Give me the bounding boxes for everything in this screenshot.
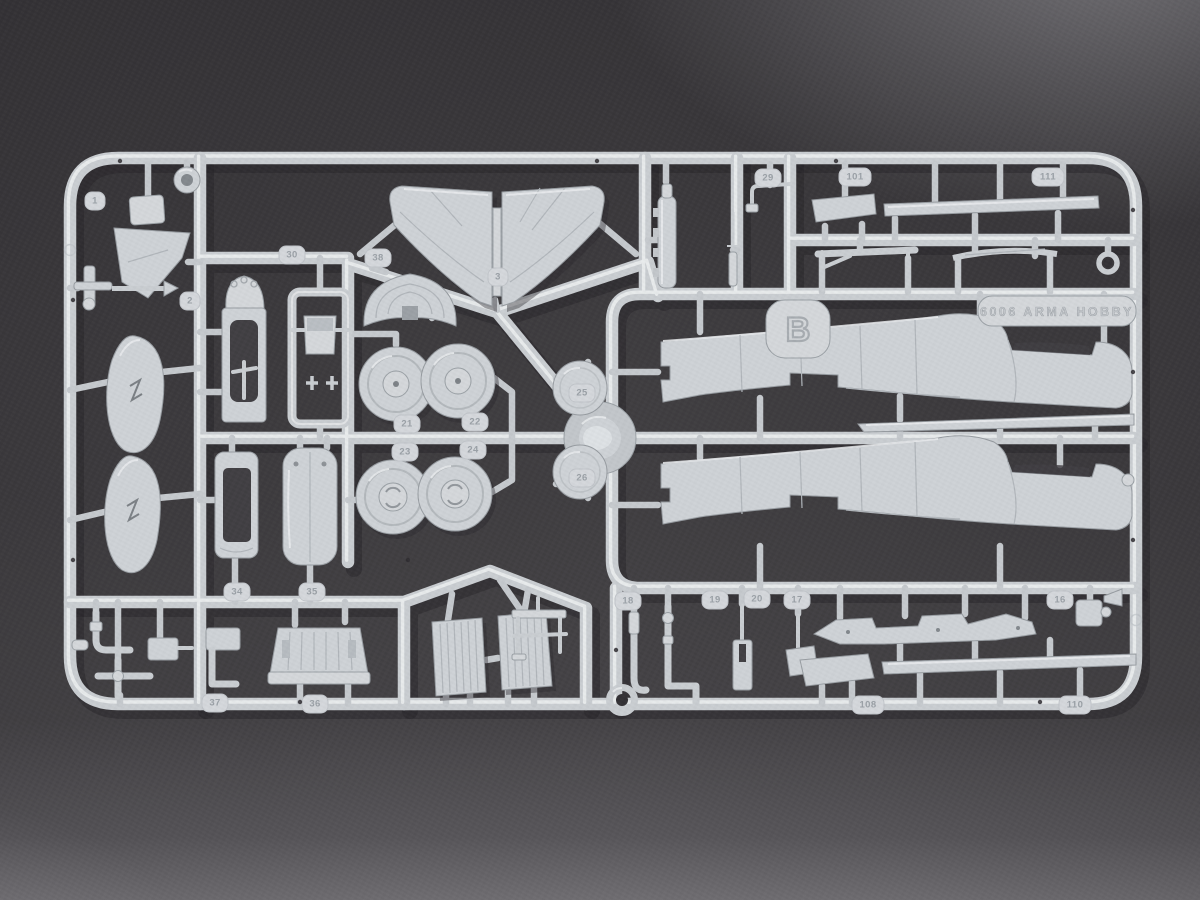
sprue-photo: B 6006 ARMA HOBBY 1 2 29 101 111 30 38 3… bbox=[0, 0, 1200, 900]
part-undercarriage-beam bbox=[814, 614, 1036, 644]
sprue-letter-tab: B bbox=[766, 300, 830, 358]
mold-text-tab: 6006 ARMA HOBBY bbox=[978, 296, 1136, 326]
part-side-panel-upper bbox=[107, 336, 164, 453]
part-wheel bbox=[421, 344, 499, 423]
part-tag: 34 bbox=[224, 583, 250, 601]
part-side-panel-lower bbox=[105, 456, 161, 573]
svg-text:3: 3 bbox=[495, 272, 501, 283]
part-linkage-left bbox=[818, 250, 915, 290]
part-tag: 101 bbox=[839, 168, 871, 186]
part-tag: 38 bbox=[365, 249, 391, 267]
part-tag: 30 bbox=[279, 246, 305, 264]
part-fuselage-half-upper bbox=[661, 314, 1132, 408]
part-tag: 3 bbox=[488, 268, 508, 286]
svg-text:111: 111 bbox=[1040, 172, 1056, 183]
part-tag: 22 bbox=[462, 413, 488, 431]
part-t-pipe bbox=[98, 660, 150, 696]
part-canopy-plug bbox=[283, 448, 337, 565]
part-ring-small bbox=[1099, 254, 1117, 272]
part-tag: 16 bbox=[1047, 591, 1073, 609]
svg-text:108: 108 bbox=[859, 700, 876, 711]
svg-text:30: 30 bbox=[286, 250, 297, 261]
part-hook-strip bbox=[629, 612, 646, 690]
svg-text:34: 34 bbox=[231, 587, 243, 598]
part-cockpit-frame bbox=[222, 276, 266, 422]
part-tag: 23 bbox=[392, 443, 418, 461]
svg-text:26: 26 bbox=[576, 473, 587, 484]
part-long-strip-top bbox=[884, 196, 1099, 216]
part-seat-assembly bbox=[292, 292, 348, 424]
svg-text:36: 36 bbox=[309, 699, 320, 710]
part-elbow-pipe bbox=[90, 612, 130, 650]
svg-text:1: 1 bbox=[92, 196, 98, 207]
part-long-strip-bottom bbox=[882, 654, 1136, 674]
part-z-lever bbox=[663, 606, 697, 704]
part-tag: 29 bbox=[755, 169, 781, 187]
part-wheel bbox=[418, 457, 496, 536]
part-block-bracket bbox=[148, 638, 192, 660]
svg-text:18: 18 bbox=[622, 596, 633, 607]
mold-text: 6006 ARMA HOBBY bbox=[980, 305, 1134, 319]
svg-text:38: 38 bbox=[372, 253, 383, 264]
part-flap-plate-lower bbox=[800, 654, 874, 686]
part-tag: 2 bbox=[180, 292, 200, 310]
part-cup bbox=[174, 167, 200, 193]
part-fuselage-tub bbox=[215, 452, 258, 558]
svg-text:22: 22 bbox=[469, 417, 480, 428]
part-tag: 17 bbox=[784, 591, 810, 609]
part-tag: 35 bbox=[299, 583, 325, 601]
part-tag: 110 bbox=[1059, 696, 1091, 714]
svg-text:2: 2 bbox=[187, 296, 193, 307]
part-nose-knob bbox=[1122, 474, 1134, 486]
part-tag: 25 bbox=[569, 384, 595, 402]
svg-text:16: 16 bbox=[1054, 595, 1065, 606]
svg-text:21: 21 bbox=[401, 419, 413, 430]
part-tag: 1 bbox=[85, 192, 105, 210]
svg-text:110: 110 bbox=[1067, 700, 1084, 711]
part-radiator bbox=[498, 612, 556, 695]
svg-text:23: 23 bbox=[399, 447, 410, 458]
part-tag: 24 bbox=[460, 441, 486, 459]
svg-text:17: 17 bbox=[791, 595, 802, 606]
part-channel bbox=[733, 606, 752, 690]
svg-text:25: 25 bbox=[576, 388, 588, 399]
part-tag: 21 bbox=[394, 415, 420, 433]
part-tag: 19 bbox=[702, 591, 728, 609]
part-tag: 18 bbox=[615, 592, 641, 610]
photo-stage: B 6006 ARMA HOBBY 1 2 29 101 111 30 38 3… bbox=[0, 0, 1200, 900]
part-tag: 37 bbox=[202, 694, 228, 712]
sprue-letter: B bbox=[786, 311, 811, 349]
svg-text:19: 19 bbox=[709, 595, 720, 606]
part-bracket-small bbox=[206, 628, 240, 684]
part-radiator bbox=[432, 618, 490, 701]
part-instrument-panel bbox=[268, 628, 370, 684]
part-tag: 36 bbox=[302, 695, 328, 713]
part-bracket-top bbox=[746, 184, 790, 212]
part-flap-plate bbox=[812, 194, 876, 222]
part-tag: 20 bbox=[744, 590, 770, 608]
svg-text:35: 35 bbox=[306, 587, 318, 598]
svg-text:24: 24 bbox=[467, 445, 479, 456]
part-tag: 108 bbox=[852, 696, 884, 714]
part-fin bbox=[114, 195, 190, 298]
part-tag: 26 bbox=[569, 469, 595, 487]
part-linkage-right bbox=[953, 249, 1057, 290]
part-stub-cylinder bbox=[72, 640, 88, 650]
svg-text:37: 37 bbox=[209, 698, 220, 709]
svg-text:29: 29 bbox=[762, 173, 773, 184]
part-tag: 111 bbox=[1032, 168, 1064, 186]
svg-text:101: 101 bbox=[846, 172, 863, 183]
svg-text:20: 20 bbox=[751, 594, 762, 605]
